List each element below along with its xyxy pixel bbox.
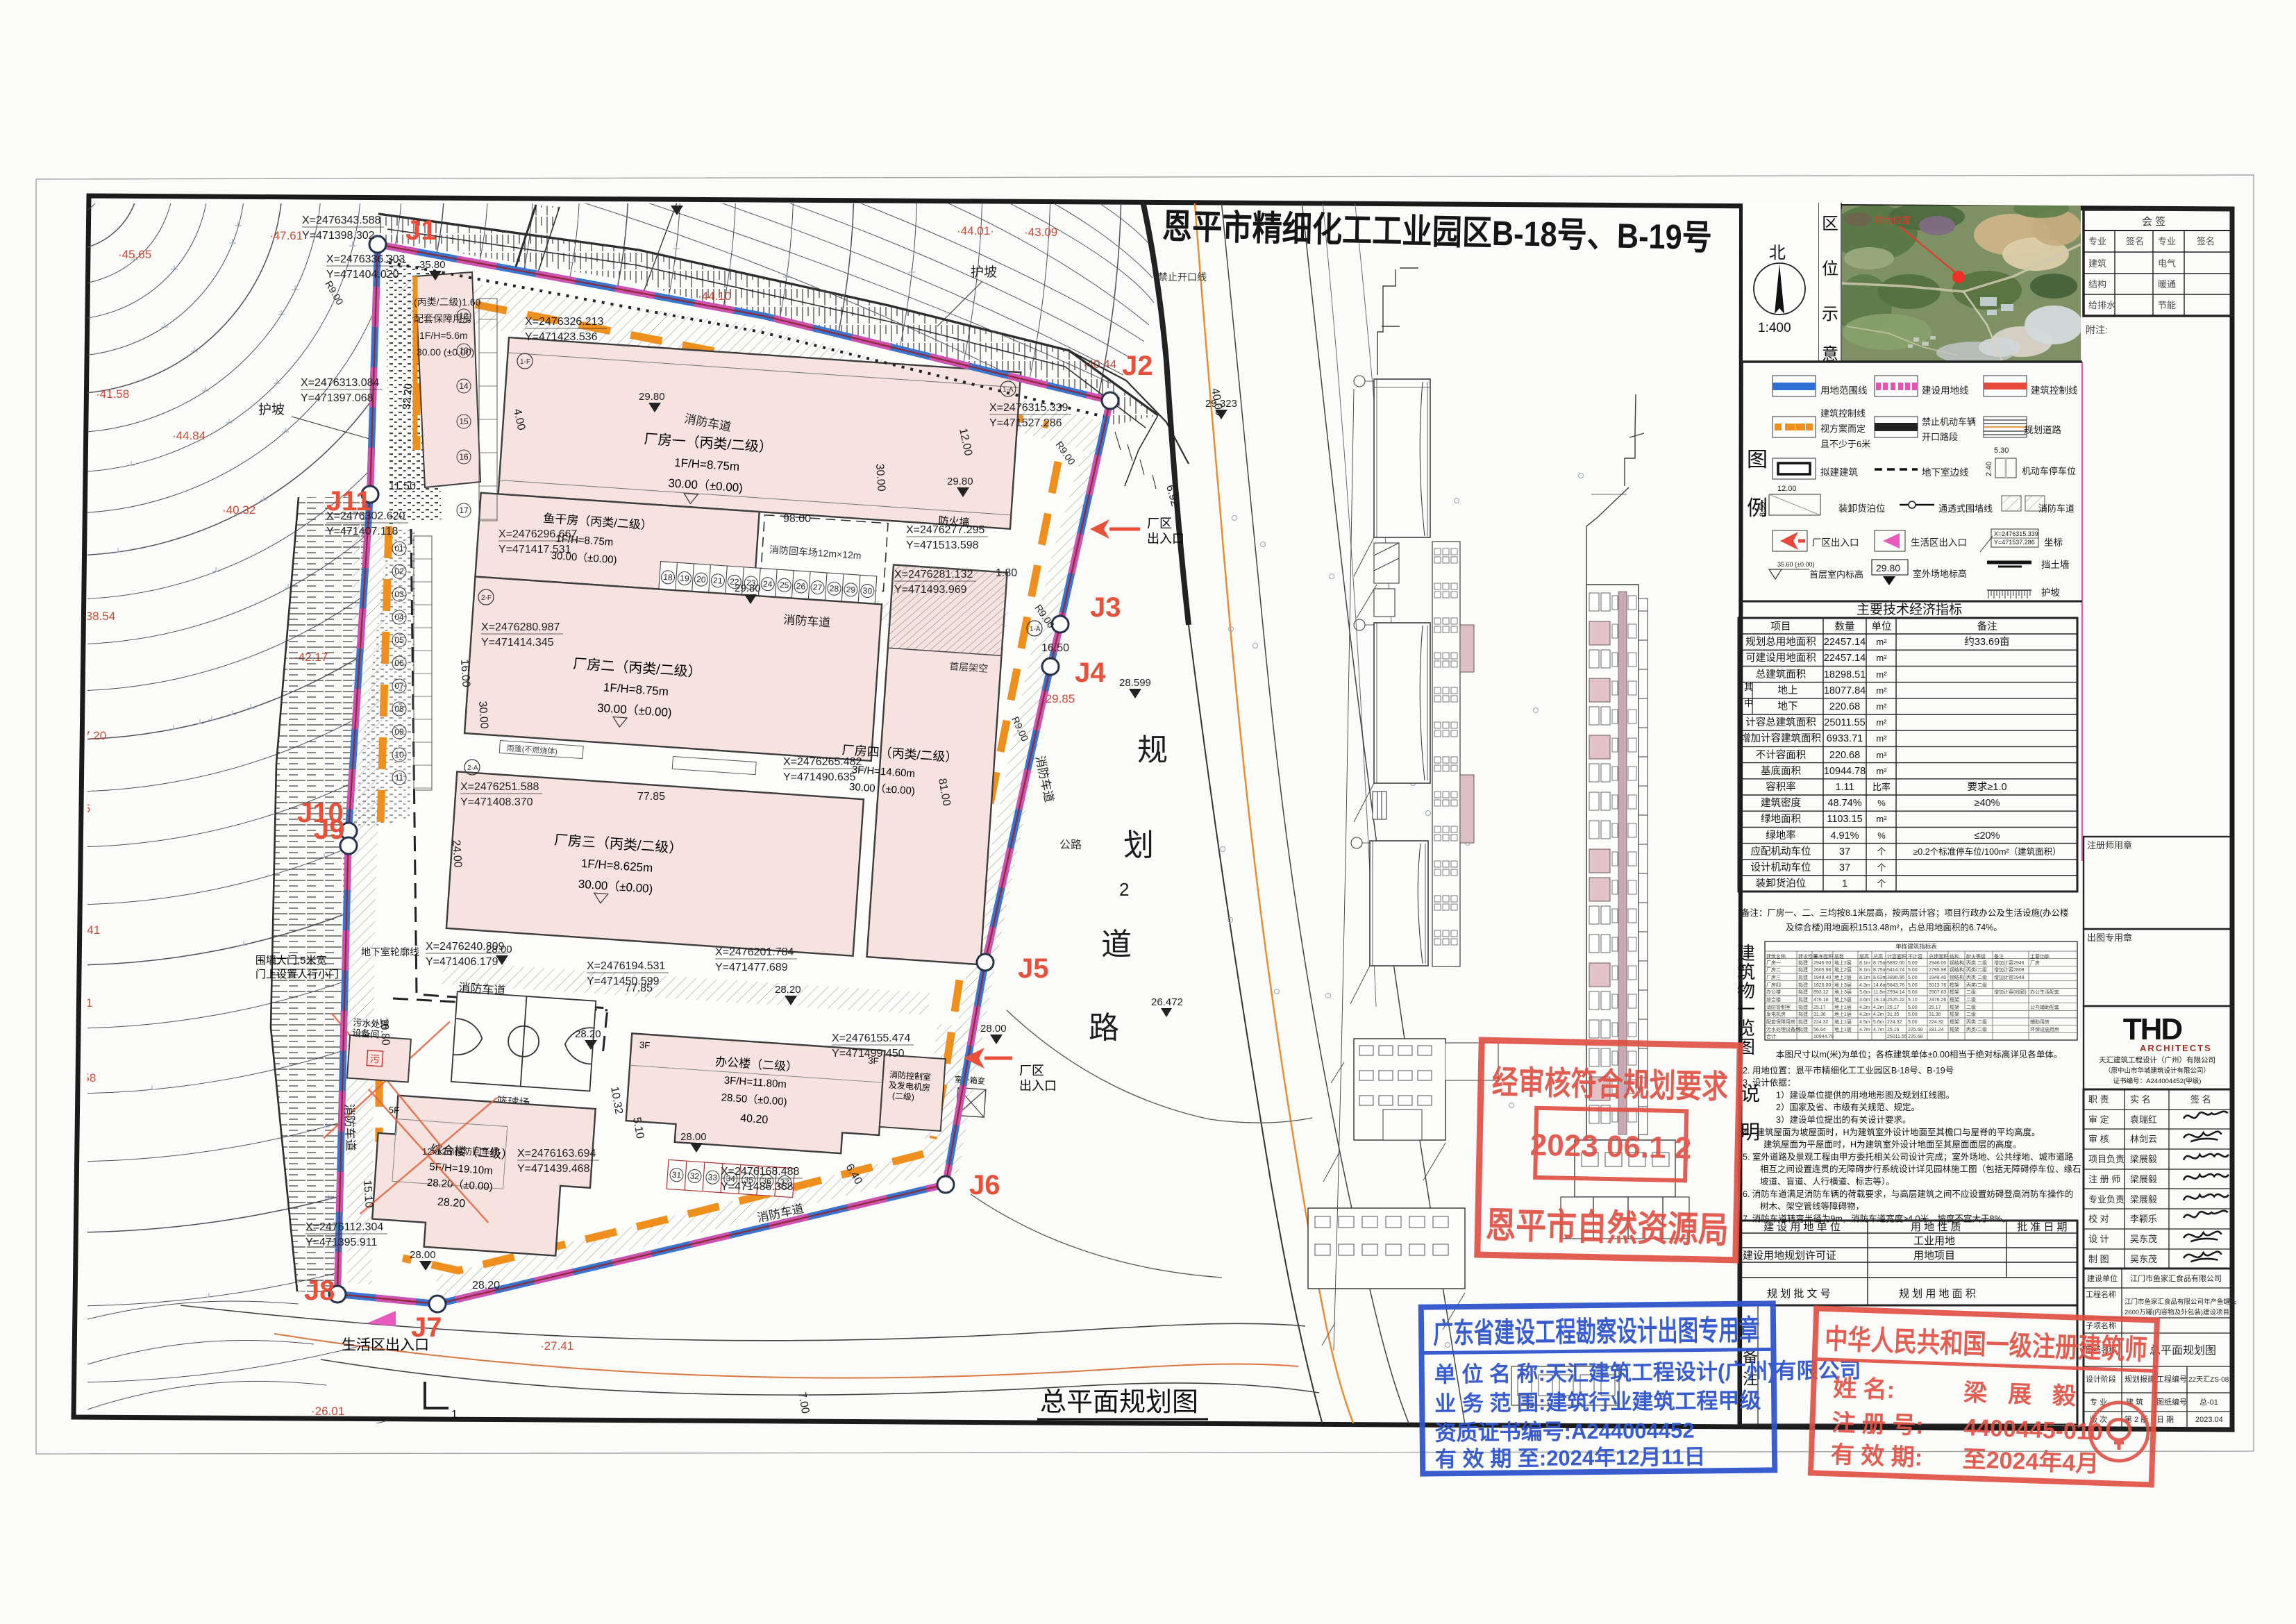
svg-text:丙类 二级: 丙类 二级 <box>1966 974 1987 980</box>
svg-text:·44.84: ·44.84 <box>172 429 206 442</box>
svg-text:X=2476112.304: X=2476112.304 <box>305 1221 383 1233</box>
svg-text:22天汇ZS-08: 22天汇ZS-08 <box>2188 1375 2229 1384</box>
svg-text:消防车道: 消防车道 <box>342 1103 357 1151</box>
svg-text:护坡: 护坡 <box>258 402 285 417</box>
svg-text:1948.40: 1948.40 <box>1813 976 1831 980</box>
svg-text:恩平市自然资源局: 恩平市自然资源局 <box>1485 1205 1729 1250</box>
svg-text:10944.78: 10944.78 <box>1824 766 1866 777</box>
svg-text:出入口: 出入口 <box>1147 532 1184 546</box>
svg-text:Y=471527.286: Y=471527.286 <box>989 417 1062 429</box>
svg-text:框架: 框架 <box>1950 1004 1959 1010</box>
svg-text:签名: 签名 <box>2197 236 2215 246</box>
svg-text:拟建: 拟建 <box>1798 1011 1808 1017</box>
svg-text:地上: 地上 <box>1778 685 1798 696</box>
svg-text:个: 个 <box>1877 862 1886 873</box>
svg-text:1-A: 1-A <box>1030 626 1041 633</box>
svg-text:建 设 用 地 单 位: 建 设 用 地 单 位 <box>1763 1221 1841 1233</box>
svg-text:4.7m: 4.7m <box>1873 1028 1884 1032</box>
svg-text:04: 04 <box>394 612 404 622</box>
svg-text:2）国家及省、市级有关规范、规定。: 2）国家及省、市级有关规范、规定。 <box>1776 1102 1920 1112</box>
svg-text:X=2476296.667: X=2476296.667 <box>498 528 578 540</box>
svg-text:16.50: 16.50 <box>1041 642 1069 654</box>
svg-text:护坡: 护坡 <box>2041 587 2061 598</box>
svg-text:20: 20 <box>696 574 707 585</box>
svg-text:Y=471493.969: Y=471493.969 <box>894 584 967 596</box>
svg-text:计容面积: 计容面积 <box>1887 953 1907 960</box>
svg-text:m²: m² <box>1876 701 1887 712</box>
svg-text:6. 消防车道满足消防车辆的荷载要求，与高层建筑之间不应设置: 6. 消防车道满足消防车辆的荷载要求，与高层建筑之间不应设置妨碍登高消防车操作的 <box>1743 1189 2073 1199</box>
svg-text:Y=471537.286: Y=471537.286 <box>1994 539 2035 546</box>
svg-text:≥0.2个标准停车位/100m²（建筑面积）: ≥0.2个标准停车位/100m²（建筑面积） <box>1913 846 2061 857</box>
svg-text:生活区出入口: 生活区出入口 <box>1911 537 1967 548</box>
svg-text:规划总用地面积: 规划总用地面积 <box>1745 636 1816 648</box>
svg-text:总建面积: 总建面积 <box>1929 953 1948 960</box>
svg-text:m²: m² <box>1876 733 1887 744</box>
svg-text:4.2m: 4.2m <box>1859 1012 1870 1017</box>
svg-text:X=2476168.488: X=2476168.488 <box>721 1166 800 1178</box>
svg-text:X=2476281.132: X=2476281.132 <box>894 569 973 580</box>
svg-text:其: 其 <box>1744 682 1753 692</box>
svg-text:X=2476315.339: X=2476315.339 <box>989 402 1069 414</box>
svg-text:07: 07 <box>394 681 404 691</box>
svg-text:证书编号：A244004452(甲级): 证书编号：A244004452(甲级) <box>2113 1077 2202 1085</box>
svg-text:道: 道 <box>1101 928 1132 962</box>
svg-text:位: 位 <box>1822 260 1838 278</box>
svg-text:禁止开口线: 禁止开口线 <box>1158 271 1207 283</box>
svg-text:拟建: 拟建 <box>1798 1019 1808 1025</box>
svg-text:专业: 专业 <box>2088 236 2106 246</box>
svg-text:增加计容2946: 增加计容2946 <box>1994 960 2025 966</box>
svg-text:厂房二: 厂房二 <box>1766 966 1781 973</box>
svg-text:·26.01: ·26.01 <box>311 1405 344 1418</box>
svg-text:02: 02 <box>394 567 404 576</box>
svg-text:X=2476265.482: X=2476265.482 <box>783 756 862 768</box>
svg-text:8.75m: 8.75m <box>1873 961 1887 966</box>
svg-text:专业负责: 专业负责 <box>2088 1194 2125 1205</box>
svg-text:25.17: 25.17 <box>1813 1005 1826 1010</box>
svg-text:总-01: 总-01 <box>2199 1397 2218 1407</box>
svg-text:拟建: 拟建 <box>1798 966 1808 973</box>
svg-text:06: 06 <box>394 658 404 668</box>
svg-text:首层室内标高: 首层室内标高 <box>1809 569 1863 580</box>
svg-text:Y=471414.345: Y=471414.345 <box>481 637 554 648</box>
svg-text:一: 一 <box>1737 999 1755 1020</box>
svg-text:J3: J3 <box>1090 592 1121 623</box>
svg-text:281.24: 281.24 <box>1929 1028 1944 1032</box>
svg-text:用 地 性 质: 用 地 性 质 <box>1911 1221 1961 1233</box>
svg-text:4.3m: 4.3m <box>1859 983 1870 988</box>
svg-text:≤20%: ≤20% <box>1975 830 2000 842</box>
svg-text:地上5层: 地上5层 <box>1834 996 1852 1003</box>
svg-text:X=2476302.620: X=2476302.620 <box>326 510 405 522</box>
svg-text:2507.63: 2507.63 <box>1929 990 1946 995</box>
svg-text:污: 污 <box>369 1053 380 1065</box>
svg-text:4400445-010: 4400445-010 <box>1963 1414 2104 1446</box>
svg-text:5.00: 5.00 <box>1908 961 1918 966</box>
svg-text:m²: m² <box>1876 637 1887 647</box>
svg-text:生活区出入口: 生活区出入口 <box>342 1337 429 1353</box>
svg-text:31.36: 31.36 <box>1813 1012 1826 1017</box>
svg-text:X=2476343.588: X=2476343.588 <box>302 215 381 226</box>
svg-text:1.11: 1.11 <box>1835 782 1854 793</box>
svg-text:3.6m: 3.6m <box>1859 990 1870 995</box>
svg-text:28.599: 28.599 <box>1119 677 1151 689</box>
svg-text:项目负责: 项目负责 <box>2088 1154 2125 1164</box>
svg-text:30.00: 30.00 <box>476 701 490 729</box>
svg-text:江门市鱼家汇食品有限公司年产鱼罐头: 江门市鱼家汇食品有限公司年产鱼罐头 <box>2125 1298 2237 1306</box>
svg-text:单 位 名 称:天汇建筑工程设计(广州)有限公司: 单 位 名 称:天汇建筑工程设计(广州)有限公司 <box>1434 1358 1861 1387</box>
svg-text:12x12m消防回车场: 12x12m消防回车场 <box>422 1146 499 1157</box>
svg-text:4.91%: 4.91% <box>1830 830 1859 842</box>
svg-text:子项名称: 子项名称 <box>2086 1321 2116 1330</box>
svg-text:1F/H=5.6m: 1F/H=5.6m <box>419 330 468 341</box>
svg-text:不计容面积: 不计容面积 <box>1756 749 1807 761</box>
svg-text:钢结构: 钢结构 <box>1950 960 1964 966</box>
svg-text:厂区: 厂区 <box>1019 1064 1044 1078</box>
svg-text:·45.65: ·45.65 <box>118 248 151 261</box>
svg-text:29.80: 29.80 <box>735 583 761 594</box>
svg-text:节能: 节能 <box>2158 300 2176 310</box>
svg-text:审 核: 审 核 <box>2088 1134 2109 1144</box>
svg-text:绿地面积: 绿地面积 <box>1761 813 1801 825</box>
svg-text:m²: m² <box>1876 653 1887 663</box>
svg-text:相互之间设置连贯的无障碍步行系统设计详见园林施工图（包括无障: 相互之间设置连贯的无障碍步行系统设计详见园林施工图（包括无障碍停车位、缘石 <box>1760 1164 2081 1174</box>
svg-text:污水处理设备房: 污水处理设备房 <box>1766 1026 1800 1032</box>
svg-text:门上设置人行小门: 门上设置人行小门 <box>255 969 339 980</box>
svg-text:2. 用地位置：恩平市精细化工工业园区B-18号、B-19号: 2. 用地位置：恩平市精细化工工业园区B-18号、B-19号 <box>1743 1065 1954 1075</box>
svg-text:1）建设单位提供的用地地形图及规划红线图。: 1）建设单位提供的用地地形图及规划红线图。 <box>1776 1089 1954 1100</box>
svg-text:12: 12 <box>459 311 469 321</box>
svg-text:路: 路 <box>1089 1011 1119 1045</box>
svg-text:2: 2 <box>1119 879 1129 900</box>
svg-text:袁瑞红: 袁瑞红 <box>2130 1114 2157 1125</box>
svg-text:25.17: 25.17 <box>1887 1005 1900 1010</box>
svg-text:28.20: 28.20 <box>472 1280 500 1291</box>
svg-text:建设单位: 建设单位 <box>2087 1273 2118 1283</box>
svg-text:开口路段: 开口路段 <box>1922 432 1958 442</box>
svg-text:J4: J4 <box>1075 658 1106 688</box>
svg-text:划: 划 <box>1123 828 1154 862</box>
svg-text:本图尺寸以m(米)为单位；各栋建筑单体±0.00相当于绝对标: 本图尺寸以m(米)为单位；各栋建筑单体±0.00相当于绝对标高详见各单体。 <box>1776 1049 2062 1060</box>
svg-text:二级: 二级 <box>1966 989 1976 995</box>
svg-text:至2024年4月: 至2024年4月 <box>1962 1446 2100 1477</box>
svg-text:5.00: 5.00 <box>1908 990 1918 995</box>
svg-text:建筑屋面为平屋面时，H为建筑室外设计地面至其屋面面层的高度。: 建筑屋面为平屋面时，H为建筑室外设计地面至其屋面面层的高度。 <box>1763 1139 2022 1150</box>
svg-text:11.8m: 11.8m <box>1873 990 1886 995</box>
svg-text:给排水: 给排水 <box>2088 300 2115 310</box>
svg-text:16: 16 <box>459 452 469 462</box>
svg-text:37: 37 <box>1839 846 1850 857</box>
svg-text:22457.14: 22457.14 <box>1824 653 1866 664</box>
svg-text:5414.74: 5414.74 <box>1887 968 1904 973</box>
svg-text:3. 设计依据：: 3. 设计依据： <box>1743 1078 1795 1088</box>
svg-text:注 册 师: 注 册 师 <box>2088 1174 2120 1184</box>
svg-text:Y=471417.531: Y=471417.531 <box>498 544 571 555</box>
svg-text:拟建: 拟建 <box>1798 1004 1808 1010</box>
svg-text:有 效 期 至:2024年12月11日: 有 效 期 至:2024年12月11日 <box>1435 1444 1706 1471</box>
svg-text:5.10: 5.10 <box>1908 998 1918 1003</box>
svg-text:基底面积: 基底面积 <box>1813 953 1833 960</box>
svg-text:5013.76: 5013.76 <box>1929 983 1946 988</box>
svg-text:21: 21 <box>713 576 723 586</box>
svg-text:丙类/二级: 丙类/二级 <box>1966 982 1987 988</box>
svg-text:19: 19 <box>680 574 690 584</box>
svg-text:建设用地规划许可证: 建设用地规划许可证 <box>1743 1250 1836 1262</box>
svg-text:注册师用章: 注册师用章 <box>2087 840 2132 851</box>
svg-text:规划报建: 规划报建 <box>2125 1374 2155 1384</box>
svg-text:ARCHITECTS: ARCHITECTS <box>2140 1043 2212 1053</box>
svg-text:19.1m: 19.1m <box>1873 998 1887 1003</box>
svg-text:主要功能: 主要功能 <box>2030 953 2050 960</box>
svg-text:98.00: 98.00 <box>783 513 811 525</box>
svg-text:893.12: 893.12 <box>1813 990 1829 995</box>
svg-text:35.60 (±0.00): 35.60 (±0.00) <box>1777 561 1814 568</box>
svg-text:X=2476277.295: X=2476277.295 <box>906 524 985 536</box>
svg-text:03: 03 <box>394 589 404 599</box>
svg-text:Y=471513.598: Y=471513.598 <box>906 539 979 551</box>
svg-text:拟建: 拟建 <box>1798 974 1808 980</box>
svg-text:经审核符合规划要求: 经审核符合规划要求 <box>1491 1063 1728 1105</box>
svg-text:1: 1 <box>1842 878 1847 889</box>
svg-text:X=2476155.474: X=2476155.474 <box>832 1032 911 1044</box>
svg-text:职 责: 职 责 <box>2088 1094 2109 1105</box>
svg-text:框架: 框架 <box>1950 1019 1959 1025</box>
svg-text:29.80: 29.80 <box>1876 562 1900 574</box>
svg-text:地上1层: 地上1层 <box>1834 1026 1852 1032</box>
svg-text:挡土墙: 挡土墙 <box>2041 560 2070 570</box>
svg-text:%: % <box>1877 830 1886 841</box>
svg-text:梁展毅: 梁展毅 <box>2130 1194 2157 1205</box>
svg-text:16.00: 16.00 <box>458 659 472 687</box>
svg-text:X=2476315.339: X=2476315.339 <box>1994 530 2038 537</box>
svg-text:Y=471397.068: Y=471397.068 <box>301 392 374 404</box>
svg-text:梁展毅: 梁展毅 <box>1963 1379 2097 1411</box>
svg-text:5.00: 5.00 <box>1908 1005 1918 1010</box>
svg-text:装卸货泊位: 装卸货泊位 <box>1838 503 1886 514</box>
svg-text:28.00: 28.00 <box>980 1023 1007 1035</box>
svg-text:览: 览 <box>1737 1018 1755 1039</box>
svg-text:丙类/二级: 丙类/二级 <box>1966 1026 1987 1032</box>
svg-text:Y=471499.450: Y=471499.450 <box>832 1048 905 1060</box>
svg-text:层高: 层高 <box>1859 953 1869 960</box>
svg-text:4.2m: 4.2m <box>1859 1005 1870 1010</box>
svg-text:28.00: 28.00 <box>680 1131 707 1143</box>
svg-text:机动车停车位: 机动车停车位 <box>2022 466 2076 476</box>
svg-text:X=2476336.303: X=2476336.303 <box>326 253 405 265</box>
svg-text:项目: 项目 <box>1771 621 1791 633</box>
svg-text:计容总建筑面积: 计容总建筑面积 <box>1745 717 1816 728</box>
svg-text:2023.04: 2023.04 <box>2195 1416 2223 1424</box>
svg-text:5.00: 5.00 <box>1908 1020 1918 1025</box>
svg-text:35.80: 35.80 <box>419 259 446 271</box>
svg-text:2946.00: 2946.00 <box>1813 961 1831 966</box>
svg-text:5.00: 5.00 <box>1908 968 1918 973</box>
svg-text:地下室轮廓线: 地下室轮廓线 <box>361 946 419 957</box>
svg-text:4.7m: 4.7m <box>1859 1028 1870 1032</box>
svg-text:地上2层: 地上2层 <box>1834 974 1852 980</box>
svg-text:Y=471439.468: Y=471439.468 <box>517 1163 590 1175</box>
svg-text:18298.51: 18298.51 <box>1824 669 1866 680</box>
svg-text:Y=471408.370: Y=471408.370 <box>460 796 533 808</box>
svg-text:坐标: 坐标 <box>2044 537 2063 548</box>
svg-text:规: 规 <box>1137 733 1168 767</box>
svg-text:地上2层: 地上2层 <box>1834 960 1852 966</box>
svg-text:09: 09 <box>394 727 404 737</box>
svg-text:梁展毅: 梁展毅 <box>2130 1174 2157 1184</box>
svg-text:规 划 用 地 面 积: 规 划 用 地 面 积 <box>1899 1288 1976 1300</box>
svg-text:丙类 二级: 丙类 二级 <box>1966 1019 1987 1025</box>
svg-text:28.20: 28.20 <box>575 1028 601 1040</box>
svg-text:主要技术经济指标: 主要技术经济指标 <box>1857 602 1962 617</box>
svg-text:26.472: 26.472 <box>1151 996 1183 1008</box>
svg-text:钢结构: 钢结构 <box>1950 974 1964 980</box>
svg-text:公路: 公路 <box>1059 839 1082 851</box>
svg-text:27: 27 <box>812 583 823 593</box>
svg-text:厂房: 厂房 <box>2030 960 2040 966</box>
svg-text:29: 29 <box>846 585 856 595</box>
svg-text:77.85: 77.85 <box>637 791 665 803</box>
svg-text:37: 37 <box>1839 862 1850 873</box>
svg-text:公共辅助配套: 公共辅助配套 <box>2030 1004 2059 1010</box>
svg-text:建筑控制线: 建筑控制线 <box>2031 385 2078 396</box>
svg-text:拟建建筑: 拟建建筑 <box>1820 467 1859 478</box>
svg-text:·47.61: ·47.61 <box>269 229 303 242</box>
svg-text:X=2476280.987: X=2476280.987 <box>481 621 560 633</box>
svg-text:4、建筑屋面为坡屋面时，H为建筑室外设计地面至其檐口与屋脊的: 4、建筑屋面为坡屋面时，H为建筑室外设计地面至其檐口与屋脊的平均高度。 <box>1743 1127 2040 1137</box>
svg-text:设计阶段: 设计阶段 <box>2086 1374 2116 1384</box>
svg-text:18077.84: 18077.84 <box>1824 685 1866 696</box>
svg-text:4.2m: 4.2m <box>1873 1012 1884 1017</box>
svg-text:10: 10 <box>394 750 404 760</box>
svg-text:2934.14: 2934.14 <box>1887 990 1904 995</box>
svg-text:30: 30 <box>862 586 873 596</box>
svg-text:地下: 地下 <box>1778 701 1798 712</box>
svg-text:X=2476326.213: X=2476326.213 <box>525 316 604 328</box>
svg-text:2023 06.1 2: 2023 06.1 2 <box>1530 1128 1691 1166</box>
svg-text:11.50: 11.50 <box>389 480 416 492</box>
svg-text:28: 28 <box>829 583 839 594</box>
svg-text:建筑控制线: 建筑控制线 <box>1820 408 1866 419</box>
svg-text:通透式围墙线: 通透式围墙线 <box>1938 503 1993 514</box>
svg-text:地上3层: 地上3层 <box>1834 982 1852 988</box>
svg-text:工业用地: 工业用地 <box>1913 1235 1955 1247</box>
svg-text:31.35: 31.35 <box>1887 1012 1900 1017</box>
svg-text:有 效 期:: 有 效 期: <box>1830 1441 1922 1471</box>
svg-text:≥40%: ≥40% <box>1975 798 2000 809</box>
svg-text:地上3层: 地上3层 <box>1834 989 1852 995</box>
svg-text:29.80: 29.80 <box>639 391 665 403</box>
svg-text:476.16: 476.16 <box>1813 998 1829 1003</box>
svg-text:吴东茂: 吴东茂 <box>2130 1254 2157 1264</box>
svg-text:图: 图 <box>1747 449 1768 471</box>
svg-text:拟建: 拟建 <box>1798 996 1808 1003</box>
svg-text:辅助用房: 辅助用房 <box>2030 1019 2050 1025</box>
svg-text:发电机房: 发电机房 <box>1766 1011 1786 1017</box>
svg-text:装卸货泊位: 装卸货泊位 <box>1756 878 1807 889</box>
svg-text:视方案而定: 视方案而定 <box>1820 424 1866 434</box>
svg-text:钢结构: 钢结构 <box>1950 966 1964 973</box>
svg-text:1948.40: 1948.40 <box>1929 976 1946 980</box>
svg-text:Y=471477.689: Y=471477.689 <box>715 962 788 973</box>
svg-text:单位: 单位 <box>1872 621 1892 633</box>
svg-text:Y=471407.118: Y=471407.118 <box>326 526 398 537</box>
svg-text:设计机动车位: 设计机动车位 <box>1751 862 1811 873</box>
svg-text:可建设用地面积: 可建设用地面积 <box>1745 652 1816 664</box>
svg-text:丙类 二级: 丙类 二级 <box>1966 960 1987 966</box>
svg-text:25.17: 25.17 <box>1929 1005 1941 1010</box>
svg-text:2525.22: 2525.22 <box>1887 998 1904 1003</box>
svg-text:224.32: 224.32 <box>1887 1020 1902 1025</box>
svg-text:总建筑面积: 总建筑面积 <box>1756 669 1807 680</box>
svg-text:25: 25 <box>780 580 790 590</box>
svg-text:批 准 日 期: 批 准 日 期 <box>2017 1221 2068 1233</box>
svg-text:单栋建筑指标表: 单栋建筑指标表 <box>1895 943 1937 950</box>
svg-text:5.6m: 5.6m <box>1873 1020 1884 1025</box>
svg-text:梁展毅: 梁展毅 <box>2130 1154 2157 1164</box>
svg-text:耐火等级: 耐火等级 <box>1966 953 1986 960</box>
svg-text:56.64: 56.64 <box>1813 1028 1826 1032</box>
svg-text:1:400: 1:400 <box>1758 321 1791 335</box>
svg-text:坡道、盲道、人行横道、标志等）。: 坡道、盲道、人行横道、标志等）。 <box>1760 1176 1895 1187</box>
svg-text:厂区出入口: 厂区出入口 <box>1812 537 1859 548</box>
svg-text:1103.15: 1103.15 <box>1827 814 1862 825</box>
svg-text:m²: m² <box>1876 717 1887 728</box>
svg-text:Y=471486.368: Y=471486.368 <box>721 1181 794 1193</box>
svg-text:3.6m: 3.6m <box>1859 998 1870 1003</box>
svg-text:8.1m: 8.1m <box>1859 968 1870 973</box>
svg-text:办公楼: 办公楼 <box>1766 989 1781 995</box>
svg-text:·41.58: ·41.58 <box>96 387 129 401</box>
svg-text:建: 建 <box>1737 943 1755 964</box>
svg-text:二级: 二级 <box>1966 1004 1976 1010</box>
svg-text:围墙大门,5米宽: 围墙大门,5米宽 <box>255 955 327 966</box>
svg-text:中: 中 <box>1744 698 1753 708</box>
svg-text:28.00: 28.00 <box>486 944 512 955</box>
svg-text:吴东茂: 吴东茂 <box>2130 1234 2157 1244</box>
svg-text:护坡: 护坡 <box>971 265 997 280</box>
svg-text:消防管制室: 消防管制室 <box>1766 1004 1791 1010</box>
svg-text:3F: 3F <box>639 1039 651 1050</box>
svg-text:厂房三: 厂房三 <box>1766 974 1781 980</box>
svg-text:J10: J10 <box>297 798 344 828</box>
svg-text:J8: J8 <box>304 1275 335 1306</box>
svg-text:拟建: 拟建 <box>1798 1026 1808 1032</box>
svg-text:李颖乐: 李颖乐 <box>2130 1214 2157 1224</box>
svg-text:5.30: 5.30 <box>1994 446 2009 455</box>
svg-text:11: 11 <box>395 773 404 782</box>
svg-text:容积率: 容积率 <box>1766 781 1796 793</box>
svg-text:地上1层: 地上1层 <box>1834 1011 1852 1017</box>
svg-text:25.16: 25.16 <box>1887 1028 1900 1032</box>
svg-text:m²: m² <box>1876 669 1887 680</box>
svg-text:框架: 框架 <box>1950 996 1959 1003</box>
svg-text:签名: 签名 <box>2126 236 2144 246</box>
svg-text:总平面规划图: 总平面规划图 <box>2150 1344 2216 1357</box>
svg-text:增加计容1948: 增加计容1948 <box>1994 974 2025 980</box>
svg-text:林剑云: 林剑云 <box>2130 1134 2157 1144</box>
svg-text:规 划 批 文 号: 规 划 批 文 号 <box>1767 1288 1831 1300</box>
svg-text:厂区: 厂区 <box>1147 517 1172 530</box>
svg-text:层数: 层数 <box>1834 953 1844 960</box>
svg-text:X=2476313.084: X=2476313.084 <box>301 377 380 389</box>
svg-text:拟建: 拟建 <box>1798 989 1808 995</box>
svg-text:Y=471406.179: Y=471406.179 <box>426 956 498 968</box>
svg-text:28.00: 28.00 <box>410 1249 436 1261</box>
svg-text:筑: 筑 <box>1737 962 1755 982</box>
svg-text:30.00: 30.00 <box>873 463 887 492</box>
svg-text:32: 32 <box>689 1171 700 1182</box>
svg-text:225.68: 225.68 <box>1908 1028 1923 1032</box>
